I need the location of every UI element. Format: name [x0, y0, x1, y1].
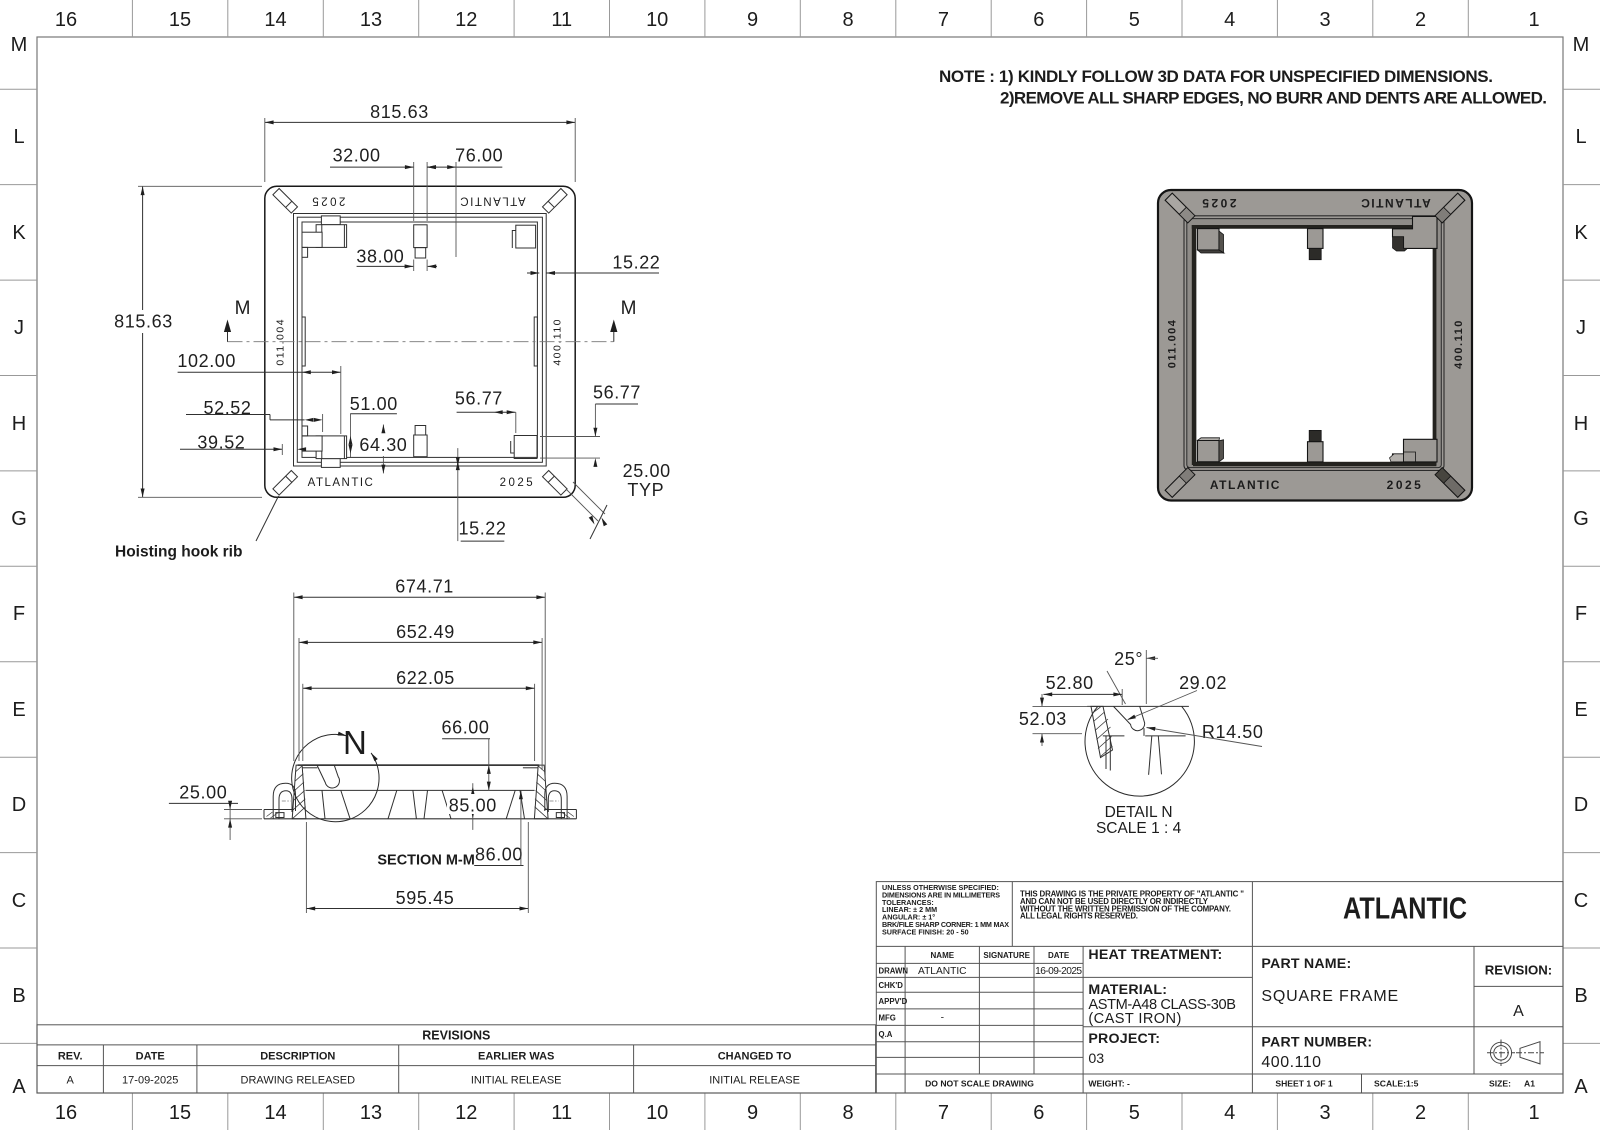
svg-text:SHEET 1 OF 1: SHEET 1 OF 1 [1275, 1079, 1333, 1089]
svg-text:12: 12 [455, 1102, 477, 1124]
svg-text:E: E [1574, 699, 1587, 721]
svg-text:H: H [12, 413, 26, 435]
svg-text:16: 16 [55, 1102, 77, 1124]
svg-text:DATE: DATE [136, 1050, 165, 1062]
svg-text:66.00: 66.00 [441, 717, 489, 737]
svg-text:SCALE 1 : 4: SCALE 1 : 4 [1096, 820, 1182, 837]
svg-text:2025: 2025 [500, 477, 536, 489]
svg-text:DATE: DATE [1048, 951, 1070, 960]
svg-text:MATERIAL:: MATERIAL: [1088, 982, 1167, 998]
svg-text:H: H [1574, 413, 1588, 435]
svg-text:1: 1 [1528, 9, 1539, 31]
svg-text:5: 5 [1129, 1102, 1140, 1124]
svg-text:14: 14 [264, 1102, 286, 1124]
svg-text:10: 10 [646, 9, 668, 31]
svg-text:L: L [1575, 126, 1586, 148]
svg-text:E: E [12, 699, 25, 721]
svg-text:1: 1 [1528, 1102, 1539, 1124]
svg-text:WEIGHT: -: WEIGHT: - [1088, 1079, 1130, 1089]
svg-text:(CAST IRON): (CAST IRON) [1088, 1011, 1181, 1027]
svg-text:INITIAL RELEASE: INITIAL RELEASE [471, 1074, 562, 1086]
svg-text:29.02: 29.02 [1179, 673, 1227, 693]
svg-text:4: 4 [1224, 9, 1235, 31]
svg-text:102.00: 102.00 [177, 351, 236, 371]
svg-text:M: M [621, 298, 637, 319]
svg-text:EARLIER WAS: EARLIER WAS [478, 1050, 554, 1062]
svg-text:ATLANTIC: ATLANTIC [308, 477, 375, 489]
svg-text:7: 7 [938, 1102, 949, 1124]
svg-text:J: J [14, 317, 24, 339]
svg-text:815.63: 815.63 [370, 102, 429, 122]
svg-text:ATLANTIC: ATLANTIC [459, 194, 526, 206]
svg-text:DRAWN: DRAWN [879, 967, 909, 976]
svg-text:SIZE:: SIZE: [1489, 1079, 1511, 1089]
svg-text:16-09-2025: 16-09-2025 [1035, 966, 1082, 977]
svg-text:M: M [11, 34, 28, 56]
svg-text:REVISION:: REVISION: [1485, 963, 1552, 978]
svg-text:PART NUMBER:: PART NUMBER: [1261, 1035, 1372, 1051]
svg-text:NAME: NAME [931, 951, 955, 960]
svg-text:ATLANTIC: ATLANTIC [1343, 891, 1467, 926]
svg-text:SQUARE FRAME: SQUARE FRAME [1261, 988, 1399, 1005]
svg-text:DRAWING RELEASED: DRAWING RELEASED [241, 1074, 356, 1086]
svg-text:5: 5 [1129, 9, 1140, 31]
svg-text:25.00: 25.00 [179, 783, 227, 803]
svg-text:B: B [1574, 985, 1587, 1007]
svg-text:F: F [13, 603, 25, 625]
svg-text:652.49: 652.49 [396, 622, 455, 642]
svg-text:Q.A: Q.A [879, 1030, 893, 1039]
svg-text:DETAIL N: DETAIL N [1105, 804, 1173, 821]
svg-text:D: D [12, 794, 26, 816]
svg-text:3: 3 [1320, 9, 1331, 31]
svg-text:13: 13 [360, 1102, 382, 1124]
svg-text:DO NOT SCALE DRAWING: DO NOT SCALE DRAWING [925, 1079, 1034, 1089]
svg-text:K: K [12, 222, 26, 244]
svg-text:ATLANTIC: ATLANTIC [1210, 478, 1281, 492]
svg-text:2025: 2025 [310, 194, 346, 206]
svg-text:MFG: MFG [879, 1014, 896, 1023]
svg-text:SIGNATURE: SIGNATURE [983, 951, 1030, 960]
svg-text:ALL LEGAL RIGHTS RESERVED.: ALL LEGAL RIGHTS RESERVED. [1020, 912, 1138, 921]
svg-text:DESCRIPTION: DESCRIPTION [260, 1050, 335, 1062]
svg-text:K: K [1574, 222, 1588, 244]
svg-text:8: 8 [842, 1102, 853, 1124]
svg-text:-: - [941, 1013, 944, 1024]
svg-text:400.110: 400.110 [1453, 319, 1465, 369]
svg-text:815.63: 815.63 [114, 312, 173, 332]
svg-text:56.77: 56.77 [455, 388, 503, 408]
svg-text:INITIAL RELEASE: INITIAL RELEASE [709, 1074, 800, 1086]
svg-text:622.05: 622.05 [396, 668, 455, 688]
svg-text:APPV'D: APPV'D [879, 997, 908, 1006]
svg-text:PROJECT:: PROJECT: [1088, 1031, 1160, 1047]
svg-text:D: D [1574, 794, 1588, 816]
svg-text:2)REMOVE ALL SHARP EDGES, NO B: 2)REMOVE ALL SHARP EDGES, NO BURR AND DE… [1000, 89, 1547, 108]
svg-text:A: A [67, 1074, 75, 1086]
svg-text:CHANGED TO: CHANGED TO [718, 1050, 792, 1062]
svg-text:PART NAME:: PART NAME: [1261, 956, 1351, 972]
svg-text:SCALE:1:5: SCALE:1:5 [1374, 1079, 1419, 1089]
svg-text:SECTION M-M: SECTION M-M [377, 853, 474, 869]
svg-text:52.80: 52.80 [1046, 673, 1094, 693]
svg-text:ATLANTIC: ATLANTIC [1360, 196, 1431, 210]
svg-text:10: 10 [646, 1102, 668, 1124]
svg-text:R14.50: R14.50 [1202, 722, 1264, 742]
svg-text:TYP: TYP [627, 480, 664, 500]
svg-text:A: A [12, 1076, 26, 1098]
svg-text:52.03: 52.03 [1019, 709, 1067, 729]
svg-text:11: 11 [551, 9, 572, 31]
svg-text:64.30: 64.30 [359, 435, 407, 455]
svg-text:85.00: 85.00 [449, 796, 497, 816]
svg-text:9: 9 [747, 1102, 758, 1124]
svg-text:03: 03 [1088, 1051, 1104, 1067]
svg-text:2025: 2025 [1200, 196, 1237, 210]
svg-text:L: L [13, 126, 24, 148]
svg-text:REVISIONS: REVISIONS [422, 1029, 490, 1043]
svg-text:3: 3 [1320, 1102, 1331, 1124]
svg-text:17-09-2025: 17-09-2025 [122, 1074, 178, 1086]
svg-text:2: 2 [1415, 1102, 1426, 1124]
svg-text:M: M [1573, 34, 1590, 56]
svg-text:56.77: 56.77 [593, 383, 641, 403]
svg-text:HEAT TREATMENT:: HEAT TREATMENT: [1088, 947, 1222, 963]
svg-text:400.110: 400.110 [1261, 1054, 1321, 1071]
svg-text:9: 9 [747, 9, 758, 31]
svg-text:011.004: 011.004 [1167, 319, 1179, 369]
svg-text:51.00: 51.00 [350, 394, 398, 414]
svg-text:15: 15 [169, 9, 191, 31]
svg-text:13: 13 [360, 9, 382, 31]
svg-text:NOTE : 1) KINDLY FOLLOW 3D DAT: NOTE : 1) KINDLY FOLLOW 3D DATA FOR UNSP… [939, 67, 1493, 86]
svg-text:A: A [1574, 1076, 1588, 1098]
svg-text:SURFACE FINISH: 20 - 50: SURFACE FINISH: 20 - 50 [882, 927, 969, 936]
svg-text:C: C [12, 890, 26, 912]
svg-text:C: C [1574, 890, 1588, 912]
svg-text:B: B [12, 985, 25, 1007]
svg-text:11: 11 [551, 1102, 572, 1124]
svg-text:G: G [1573, 508, 1589, 530]
svg-text:595.45: 595.45 [396, 888, 455, 908]
svg-text:32.00: 32.00 [333, 146, 381, 166]
svg-text:4: 4 [1224, 1102, 1235, 1124]
svg-text:86.00: 86.00 [475, 845, 523, 865]
svg-text:G: G [11, 508, 27, 530]
svg-text:12: 12 [455, 9, 477, 31]
svg-text:15.22: 15.22 [612, 253, 660, 273]
svg-text:6: 6 [1033, 1102, 1044, 1124]
svg-text:2: 2 [1415, 9, 1426, 31]
svg-text:15.22: 15.22 [458, 519, 506, 539]
svg-text:25.00: 25.00 [623, 461, 671, 481]
svg-text:25°: 25° [1114, 649, 1143, 669]
svg-text:16: 16 [55, 9, 77, 31]
svg-text:ATLANTIC: ATLANTIC [918, 966, 967, 977]
svg-text:Hoisting hook rib: Hoisting hook rib [115, 544, 242, 561]
svg-text:76.00: 76.00 [455, 146, 503, 166]
svg-text:7: 7 [938, 9, 949, 31]
svg-text:2025: 2025 [1387, 478, 1424, 492]
svg-text:J: J [1576, 317, 1586, 339]
svg-text:M: M [235, 298, 251, 319]
svg-text:8: 8 [842, 9, 853, 31]
svg-text:14: 14 [264, 9, 286, 31]
svg-text:N: N [343, 724, 367, 761]
svg-text:674.71: 674.71 [395, 577, 454, 597]
svg-text:15: 15 [169, 1102, 191, 1124]
svg-text:A1: A1 [1524, 1079, 1535, 1089]
svg-text:38.00: 38.00 [356, 247, 404, 267]
svg-text:CHK'D: CHK'D [879, 981, 904, 990]
svg-text:F: F [1575, 603, 1587, 625]
svg-text:REV.: REV. [58, 1050, 83, 1062]
svg-text:6: 6 [1033, 9, 1044, 31]
svg-text:A: A [1513, 1003, 1524, 1020]
